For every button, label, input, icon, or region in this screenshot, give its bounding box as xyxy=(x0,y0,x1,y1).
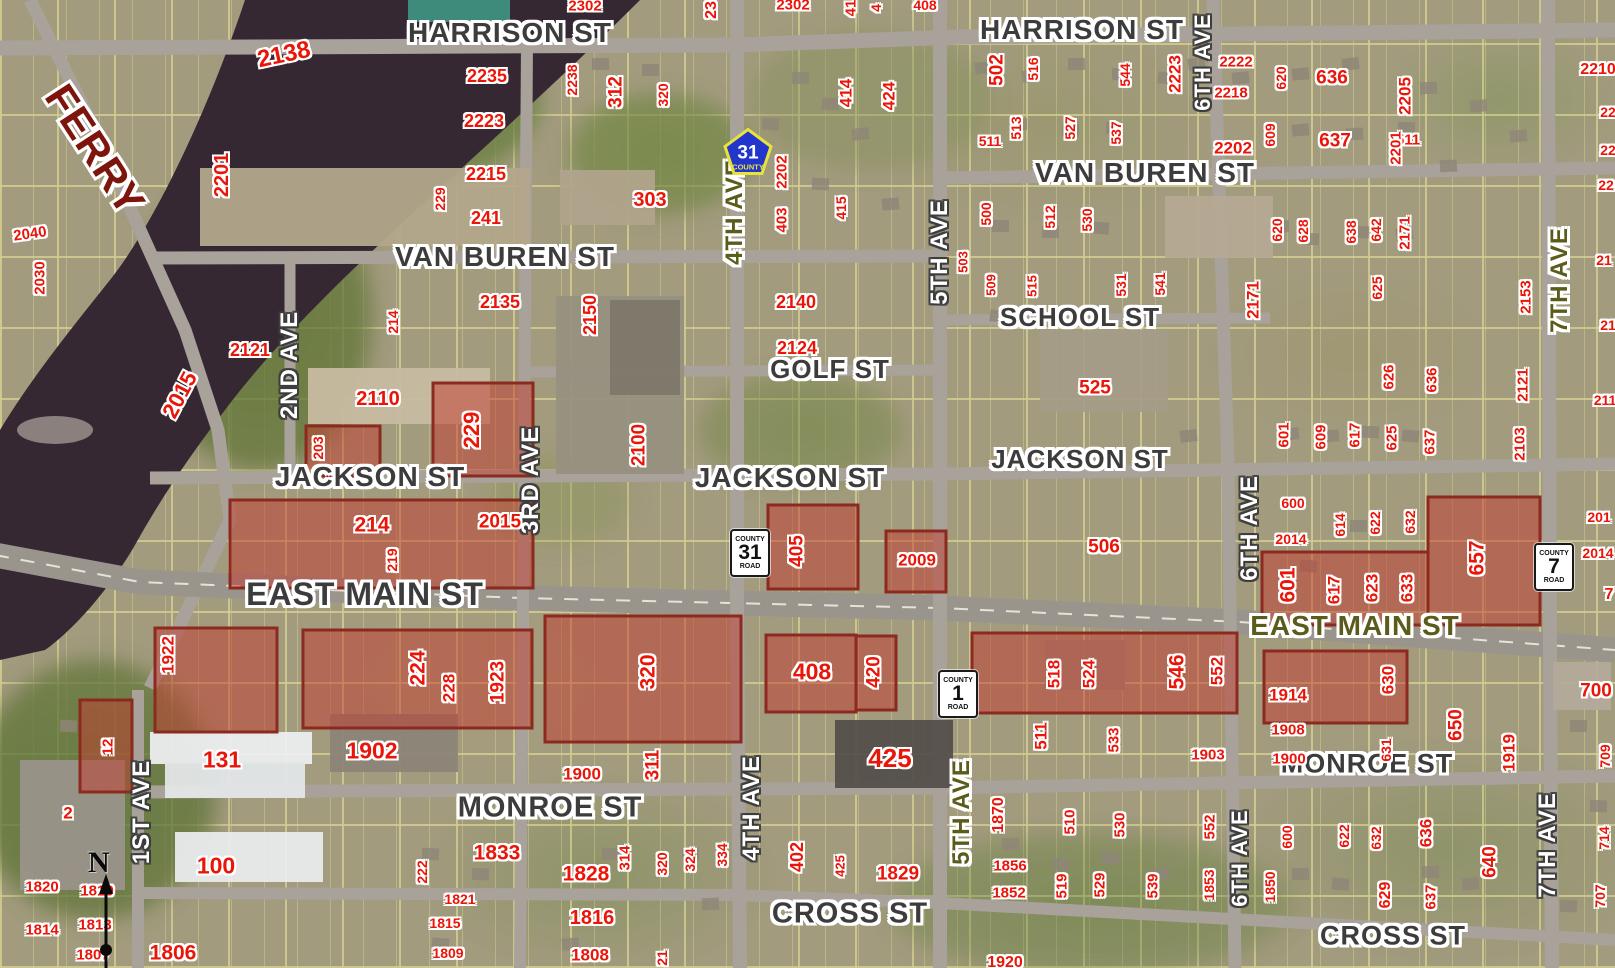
address-label: 617 xyxy=(1348,422,1363,447)
address-label: 1902 xyxy=(346,740,397,763)
address-label: 2015 xyxy=(159,368,201,422)
address-label: 2014 xyxy=(1582,546,1613,560)
address-label: 1923 xyxy=(489,661,508,703)
avenue-label: 1ST AVE xyxy=(130,760,154,864)
svg-text:31: 31 xyxy=(737,143,759,164)
address-label: 626 xyxy=(1382,364,1397,389)
address-label: 320 xyxy=(656,83,670,106)
address-label: 1922 xyxy=(160,636,177,674)
avenue-label: 6TH AVE xyxy=(1229,809,1251,906)
address-label: 552 xyxy=(1203,814,1218,839)
address-label: 650 xyxy=(1447,709,1466,741)
address-label: 1829 xyxy=(877,865,919,884)
address-label: 2171 xyxy=(1398,216,1413,249)
address-label: 625 xyxy=(1385,425,1400,450)
address-label: 620 xyxy=(1270,218,1284,241)
address-label: 510 xyxy=(1063,809,1078,834)
address-label: 546 xyxy=(1167,654,1188,689)
address-label: 2015 xyxy=(479,513,521,532)
address-label: 2223 xyxy=(1167,55,1184,93)
address-label: 2124 xyxy=(777,339,817,357)
street-label: HARRISON ST xyxy=(408,19,612,47)
address-label: 222 xyxy=(415,860,429,883)
address-label: 2135 xyxy=(480,293,520,311)
aerial-parcel-map[interactable]: HARRISON STHARRISON STVAN BUREN STVAN BU… xyxy=(0,0,1615,968)
shield-road-text: ROAD xyxy=(948,704,969,711)
address-label: 1815 xyxy=(429,916,460,930)
address-label: 642 xyxy=(1369,218,1383,241)
address-label: 1852 xyxy=(992,886,1025,901)
address-label: 21 xyxy=(655,950,669,966)
address-label: 22 xyxy=(1600,143,1615,157)
address-label: 403 xyxy=(775,207,790,232)
address-label: 2014 xyxy=(1275,532,1306,546)
avenue-label: 5TH AVE xyxy=(950,759,974,865)
north-arrow-compass: N xyxy=(96,872,122,968)
address-label: 408 xyxy=(793,661,831,684)
shield-number: 31 xyxy=(738,543,761,563)
address-label: 2100 xyxy=(630,424,649,466)
address-label: 1856 xyxy=(993,859,1026,874)
address-label: 1853 xyxy=(1202,869,1216,900)
street-label: SCHOOL ST xyxy=(1000,304,1160,330)
address-label: 519 xyxy=(1055,873,1070,898)
street-label: MONROE ST xyxy=(458,794,643,823)
address-label: 2205 xyxy=(1397,77,1414,115)
address-label: 1900 xyxy=(1272,752,1305,767)
address-label: 320 xyxy=(655,852,669,875)
address-label: 622 xyxy=(1368,511,1382,534)
address-label: 636 xyxy=(1316,69,1348,88)
address-label: 425 xyxy=(868,745,911,771)
address-label: 638 xyxy=(1344,220,1358,243)
compass-arrow-icon xyxy=(96,872,122,968)
address-label: 241 xyxy=(471,209,501,227)
address-label: 320 xyxy=(638,654,659,689)
address-label: 2110 xyxy=(356,389,399,409)
address-label: 1903 xyxy=(1191,748,1224,763)
street-label: HARRISON ST xyxy=(980,16,1184,44)
address-label: 2140 xyxy=(776,293,816,311)
address-label: 506 xyxy=(1088,538,1120,557)
avenue-label: 7TH AVE xyxy=(1536,792,1560,898)
address-label: 637 xyxy=(1319,132,1351,151)
address-label: 2103 xyxy=(1513,427,1528,460)
map-labels-layer: HARRISON STHARRISON STVAN BUREN STVAN BU… xyxy=(0,0,1615,968)
address-label: 530 xyxy=(1080,208,1094,231)
pentagon-shield-icon: 31 COUNTY xyxy=(723,128,773,176)
street-label: GOLF ST xyxy=(770,356,890,382)
avenue-label: 7TH AVE xyxy=(1548,227,1572,333)
address-label: 614 xyxy=(1333,513,1347,536)
address-label: 2040 xyxy=(12,224,47,243)
svg-text:COUNTY: COUNTY xyxy=(732,163,764,172)
address-label: 1908 xyxy=(1271,723,1304,738)
address-label: 1920 xyxy=(987,955,1023,968)
address-label: 622 xyxy=(1337,824,1351,847)
address-label: 2210 xyxy=(1580,62,1615,78)
address-label: 657 xyxy=(1467,540,1488,575)
address-label: 201 xyxy=(1587,510,1610,524)
compass-n-label: N xyxy=(88,846,110,880)
address-label: 303 xyxy=(633,190,666,210)
address-label: 2150 xyxy=(581,295,599,335)
address-label: 214 xyxy=(354,515,389,536)
address-label: 22 xyxy=(1598,178,1614,192)
address-label: 211 xyxy=(1594,393,1615,407)
address-label: 500 xyxy=(979,202,993,225)
address-label: 709 xyxy=(1598,744,1612,767)
address-label: 531 xyxy=(1114,273,1128,296)
address-label: 2009 xyxy=(898,552,936,569)
address-label: 637 xyxy=(1423,429,1438,454)
address-label: 2201 xyxy=(212,153,232,198)
address-label: 2223 xyxy=(464,112,504,130)
shield-road-text: ROAD xyxy=(1544,577,1565,584)
address-label: 503 xyxy=(957,251,970,273)
address-label: 516 xyxy=(1026,57,1040,80)
address-label: 609 xyxy=(1314,424,1329,449)
address-label: 23 xyxy=(704,1,720,19)
shield-number: 7 xyxy=(1548,557,1560,577)
address-label: 1850 xyxy=(1263,871,1277,902)
avenue-label: 2ND AVE xyxy=(278,311,302,419)
address-label: 700 xyxy=(1580,682,1612,701)
address-label: 541 xyxy=(1153,272,1167,295)
avenue-label: 5TH AVE xyxy=(928,199,952,305)
address-label: 229 xyxy=(433,187,447,210)
address-label: 530 xyxy=(1113,812,1128,837)
address-label: 405 xyxy=(788,535,807,567)
county-7-road-shield: COUNTY 7 ROAD xyxy=(1534,543,1574,591)
address-label: 511 xyxy=(979,134,1002,148)
address-label: 525 xyxy=(1079,379,1111,398)
address-label: 529 xyxy=(1093,872,1108,897)
address-label: 21 xyxy=(1600,318,1615,332)
county-31-pentagon-shield: 31 COUNTY xyxy=(723,128,773,181)
avenue-label: 4TH AVE xyxy=(740,755,764,861)
address-label: 509 xyxy=(985,274,998,296)
address-label: 2153 xyxy=(1519,280,1534,313)
street-label: CROSS ST xyxy=(1320,923,1466,950)
address-label: 1870 xyxy=(991,797,1007,833)
address-label: 640 xyxy=(1481,846,1500,878)
address-label: 2222 xyxy=(1219,55,1252,70)
address-label: 502 xyxy=(988,54,1007,86)
street-label: VAN BUREN ST xyxy=(395,243,615,271)
address-label: 228 xyxy=(441,674,458,702)
address-label: 537 xyxy=(1109,121,1123,144)
address-label: 714 xyxy=(1597,826,1611,849)
street-label: EAST MAIN ST xyxy=(1250,612,1460,640)
address-label: 324 xyxy=(683,848,697,871)
address-label: 544 xyxy=(1118,63,1132,86)
avenue-label: 3RD AVE xyxy=(519,426,543,534)
address-label: 2121 xyxy=(230,341,270,359)
address-label: 2215 xyxy=(466,165,506,183)
address-label: 414 xyxy=(838,79,855,107)
address-label: 2 xyxy=(63,805,72,822)
address-label: 219 xyxy=(385,548,399,571)
address-label: 1821 xyxy=(444,892,475,906)
county-1-road-shield: COUNTY 1 ROAD xyxy=(938,670,978,718)
address-label: 1806 xyxy=(150,943,197,964)
address-label: 2171 xyxy=(1245,281,1262,319)
address-label: 224 xyxy=(408,650,429,685)
address-label: 620 xyxy=(1274,66,1288,89)
address-label: 12 xyxy=(101,739,116,756)
address-label: 2138 xyxy=(255,38,312,73)
address-label: 2302 xyxy=(776,0,809,13)
address-label: 524 xyxy=(1081,660,1098,688)
address-label: 539 xyxy=(1146,873,1161,898)
address-label: 636 xyxy=(1418,819,1435,847)
avenue-label: 6TH AVE xyxy=(1192,13,1214,110)
street-label: JACKSON ST xyxy=(695,464,885,492)
shield-road-text: ROAD xyxy=(740,563,761,570)
address-label: 1833 xyxy=(474,843,521,864)
address-label: 312 xyxy=(607,76,626,108)
address-label: 511 xyxy=(1033,722,1050,749)
address-label: 515 xyxy=(1026,275,1039,297)
address-label: 4 xyxy=(869,4,883,12)
address-label: 425 xyxy=(834,855,847,877)
address-label: 2238 xyxy=(565,64,579,95)
address-label: 2121 xyxy=(1516,368,1531,401)
address-label: 533 xyxy=(1107,727,1122,752)
address-label: 632 xyxy=(1403,510,1417,533)
address-label: 632 xyxy=(1369,826,1383,849)
address-label: 1816 xyxy=(570,908,615,928)
address-label: 408 xyxy=(913,0,936,12)
address-label: 7 xyxy=(1605,587,1614,603)
county-31-road-shield: COUNTY 31 ROAD xyxy=(730,529,770,577)
address-label: 334 xyxy=(715,843,729,866)
address-label: 617 xyxy=(1326,576,1343,604)
address-label: 415 xyxy=(834,196,848,219)
address-label: 314 xyxy=(618,845,633,870)
address-label: 630 xyxy=(1380,666,1397,694)
address-label: 1900 xyxy=(563,766,601,783)
address-label: 2235 xyxy=(467,67,507,85)
address-label: 100 xyxy=(197,855,235,878)
address-label: 2218 xyxy=(1214,86,1247,101)
address-label: 2201 xyxy=(1389,131,1404,164)
address-label: 21 xyxy=(1596,253,1612,267)
address-label: 625 xyxy=(1370,276,1384,299)
address-label: 527 xyxy=(1063,116,1077,139)
address-label: 420 xyxy=(865,656,884,688)
shield-number: 1 xyxy=(952,684,964,704)
address-label: 601 xyxy=(1278,567,1299,602)
address-label: 513 xyxy=(1009,116,1023,139)
address-label: 41 xyxy=(844,0,859,16)
address-label: 229 xyxy=(461,412,483,449)
address-label: 628 xyxy=(1296,219,1310,242)
address-label: 707 xyxy=(1593,884,1607,907)
address-label: 623 xyxy=(1364,574,1381,602)
address-label: 552 xyxy=(1209,657,1226,685)
address-label: 1914 xyxy=(1269,687,1307,704)
street-label: CROSS ST xyxy=(772,900,928,929)
address-label: 214 xyxy=(386,310,400,333)
address-label: 1919 xyxy=(1501,734,1518,772)
address-label: 2202 xyxy=(1214,140,1252,157)
address-label: 22 xyxy=(1600,105,1615,119)
address-label: 636 xyxy=(1425,367,1440,392)
address-label: 2030 xyxy=(33,261,48,294)
street-label: JACKSON ST xyxy=(991,446,1169,472)
address-label: 424 xyxy=(881,82,898,110)
street-label: JACKSON ST xyxy=(275,463,465,491)
address-label: 131 xyxy=(203,749,241,772)
street-label: VAN BUREN ST xyxy=(1035,159,1255,187)
street-label: EAST MAIN ST xyxy=(246,578,484,610)
avenue-label: 6TH AVE xyxy=(1238,475,1262,581)
address-label: 631 xyxy=(1379,738,1393,761)
address-label: 601 xyxy=(1277,422,1292,447)
address-label: 1828 xyxy=(563,864,610,885)
address-label: 1820 xyxy=(25,880,58,895)
address-label: 518 xyxy=(1046,660,1063,688)
address-label: 600 xyxy=(1280,825,1294,848)
address-label: 203 xyxy=(311,436,325,459)
address-label: 637 xyxy=(1424,884,1439,909)
address-label: 2202 xyxy=(775,155,790,188)
street-label: FERRY xyxy=(38,77,153,222)
address-label: 1814 xyxy=(25,923,58,938)
address-label: 629 xyxy=(1378,882,1394,909)
address-label: 1809 xyxy=(432,946,463,960)
address-label: 609 xyxy=(1263,123,1277,146)
street-label: MONROE ST xyxy=(1281,751,1454,778)
address-label: 2302 xyxy=(568,0,601,14)
address-label: 633 xyxy=(1399,574,1416,602)
address-label: 1808 xyxy=(571,947,609,964)
address-label: 311 xyxy=(644,750,663,781)
address-label: 600 xyxy=(1281,496,1304,510)
address-label: 402 xyxy=(788,842,806,872)
address-label: 512 xyxy=(1043,205,1057,228)
